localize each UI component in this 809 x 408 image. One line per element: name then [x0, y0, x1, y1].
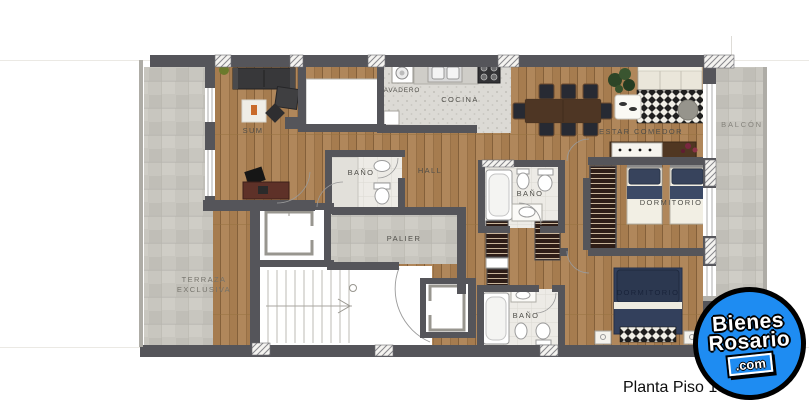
floor-plan: SUM AVADERO COCINA ESTAR COMEDOR BALCÓN … — [0, 0, 809, 408]
shaft — [306, 79, 380, 126]
balcon-railing — [763, 67, 767, 298]
window — [205, 88, 215, 122]
label-dormitorio-2: DORMITORIO — [617, 288, 680, 297]
kitchen-cabinet — [384, 111, 399, 125]
logo-brand-line2: Rosario — [708, 329, 791, 354]
pouf — [678, 100, 698, 120]
toilet — [375, 188, 389, 204]
bidet — [515, 323, 527, 339]
armchair — [275, 87, 300, 110]
label-bano-suite: BAÑO — [517, 189, 544, 198]
label-lavadero: AVADERO — [384, 87, 421, 94]
label-estar-comedor: ESTAR COMEDOR — [599, 127, 683, 136]
wardrobe — [590, 166, 616, 250]
logo-tld: .com — [728, 353, 774, 377]
lamp — [251, 105, 257, 115]
label-balcon: BALCÓN — [721, 120, 763, 129]
single-bed — [670, 164, 705, 224]
nightstand — [595, 331, 611, 344]
label-bano-inferior: BAÑO — [513, 311, 540, 320]
label-terraza-1: TERRAZA — [182, 275, 227, 284]
shelf — [486, 258, 508, 268]
double-bed — [614, 268, 682, 342]
coffee-table — [615, 95, 641, 119]
balcon-floor — [716, 67, 765, 298]
window — [205, 150, 215, 196]
window — [703, 266, 716, 296]
window — [703, 188, 716, 236]
label-dormitorio-1: DORMITORIO — [640, 198, 703, 207]
terraza-railing — [139, 60, 143, 347]
single-bed — [627, 164, 662, 224]
ascensor-1 — [266, 212, 312, 254]
label-sum: SUM — [243, 126, 264, 135]
bidet — [517, 173, 529, 189]
label-terraza-2: EXCLUSIVA — [177, 285, 231, 294]
window — [703, 84, 716, 158]
label-palier: PALIER — [387, 234, 422, 243]
dining-chair — [583, 84, 598, 99]
label-cocina: COCINA — [441, 95, 479, 104]
dining-chair — [539, 84, 554, 99]
label-hall: HALL — [418, 166, 442, 175]
dining-chair — [561, 84, 576, 99]
sink — [374, 161, 390, 172]
label-bano-hall: BAÑO — [348, 168, 375, 177]
toilet — [536, 323, 550, 339]
